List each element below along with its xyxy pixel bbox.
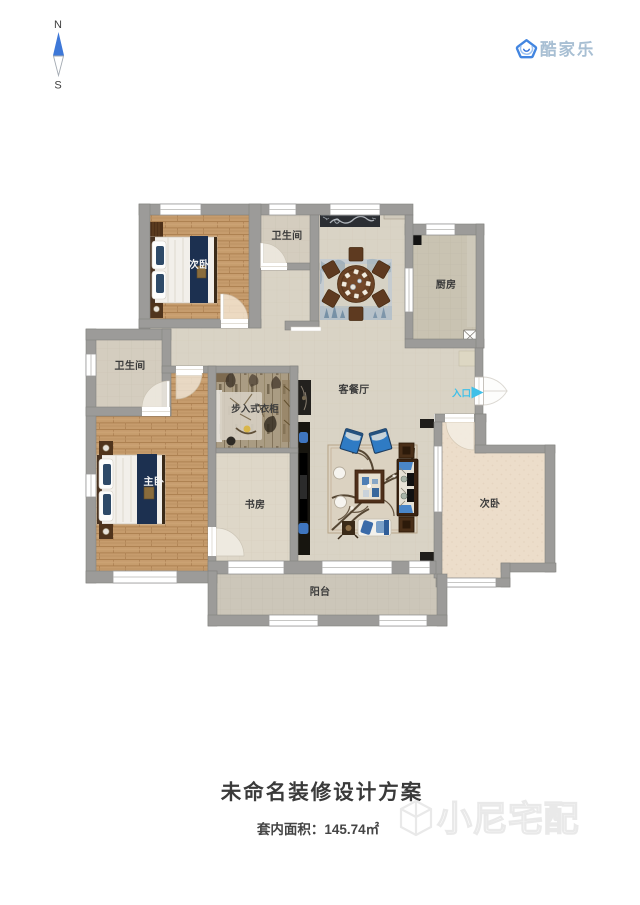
- svg-text:卫生间: 卫生间: [272, 229, 303, 242]
- svg-text:厨房: 厨房: [436, 278, 457, 291]
- svg-text:卫生间: 卫生间: [115, 359, 146, 372]
- svg-text:客餐厅: 客餐厅: [338, 383, 370, 396]
- svg-text:S: S: [54, 80, 61, 92]
- svg-text:次卧: 次卧: [480, 497, 501, 510]
- svg-text:套内面积：145.74㎡: 套内面积：145.74㎡: [257, 821, 380, 837]
- svg-text:入口: 入口: [451, 389, 471, 400]
- svg-text:主卧: 主卧: [144, 475, 165, 488]
- svg-text:次卧: 次卧: [189, 258, 210, 271]
- svg-text:未命名装修设计方案: 未命名装修设计方案: [221, 780, 424, 804]
- svg-text:小尼宅配: 小尼宅配: [437, 799, 579, 839]
- svg-text:N: N: [54, 19, 62, 31]
- svg-text:酷家乐: 酷家乐: [540, 39, 596, 59]
- svg-text:书房: 书房: [245, 498, 266, 511]
- svg-text:步入式衣柜: 步入式衣柜: [231, 403, 279, 415]
- svg-text:阳台: 阳台: [310, 585, 331, 598]
